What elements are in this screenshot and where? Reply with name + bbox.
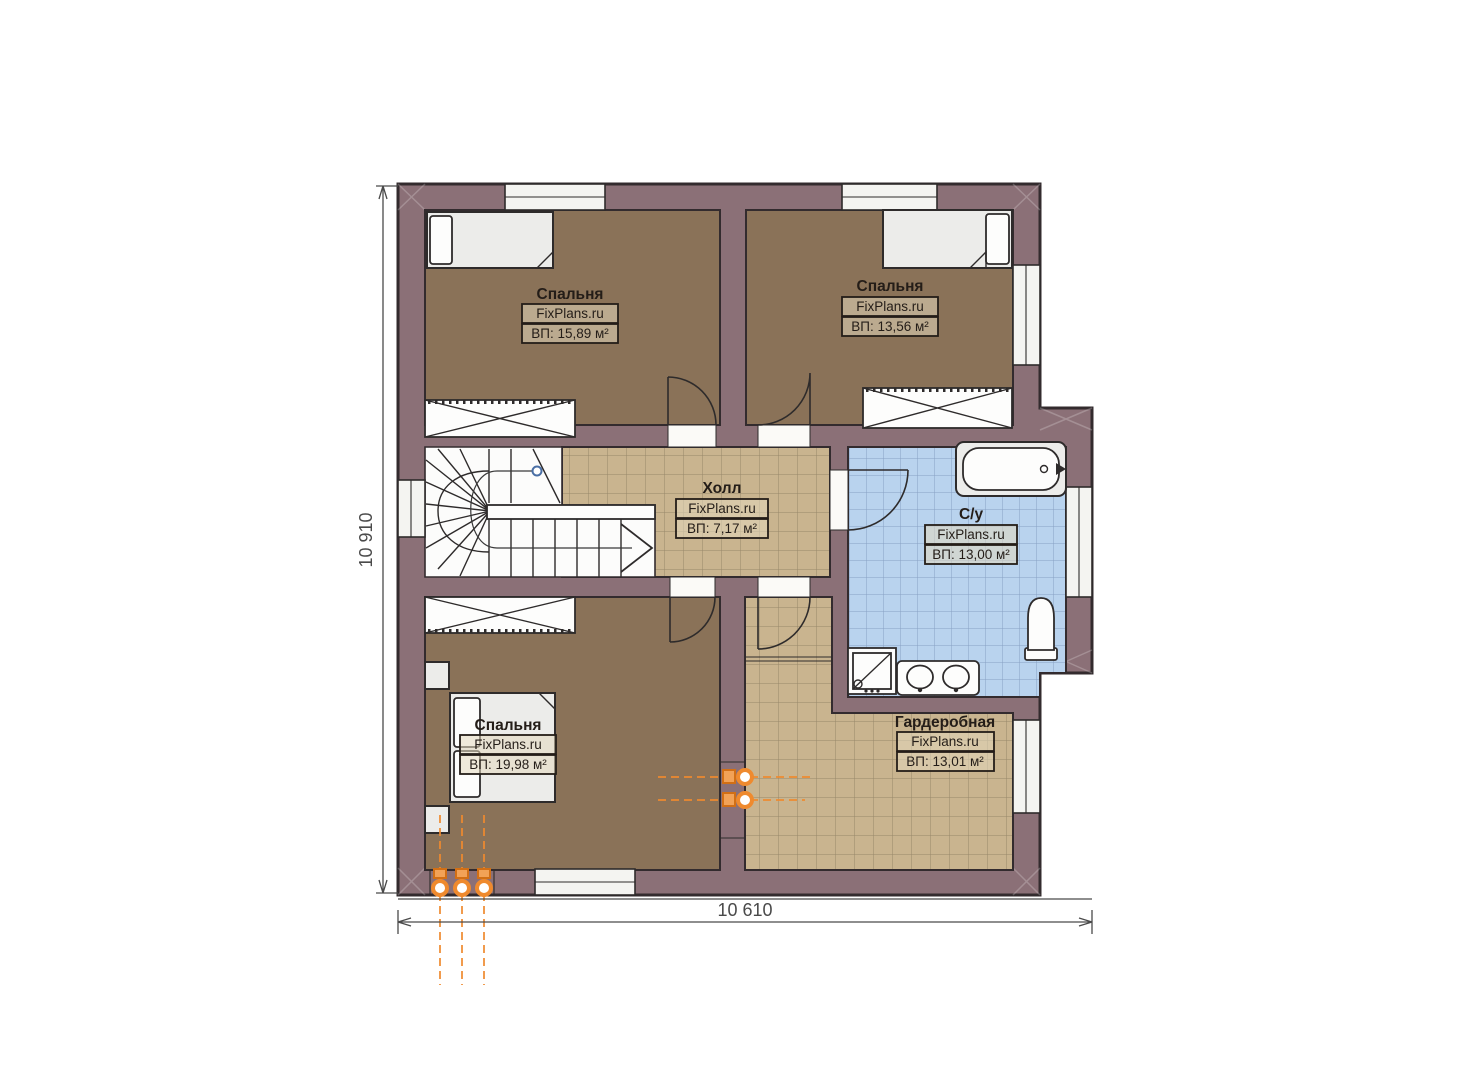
shower xyxy=(848,648,896,694)
watermark: FixPlans.ru xyxy=(688,501,756,516)
stair-walk-line-start xyxy=(533,467,542,476)
dimension-left: 10 910 xyxy=(356,186,398,893)
window-bedroom-2-top xyxy=(842,184,937,210)
pillow xyxy=(986,214,1009,264)
stair-handrail xyxy=(487,505,655,519)
riser-symbol xyxy=(478,869,490,878)
bathtub xyxy=(956,442,1066,496)
watermark: FixPlans.ru xyxy=(474,737,542,752)
window-bathroom-right xyxy=(1066,487,1092,597)
window-bedroom-1-top xyxy=(505,184,605,210)
riser-symbol xyxy=(723,770,735,783)
room-area: ВП: 13,00 м² xyxy=(932,547,1010,562)
room-name: Спальня xyxy=(475,717,542,734)
watermark: FixPlans.ru xyxy=(856,299,924,314)
room-name: Спальня xyxy=(857,278,924,295)
watermark: FixPlans.ru xyxy=(536,306,604,321)
building xyxy=(398,184,1092,985)
dimension-bottom: 10 610 xyxy=(398,899,1092,934)
room-area: ВП: 15,89 м² xyxy=(531,326,609,341)
room-area: ВП: 13,56 м² xyxy=(851,319,929,334)
room-name: Холл xyxy=(703,480,742,497)
room-name: С/у xyxy=(959,506,984,523)
riser-symbol xyxy=(738,770,752,784)
window-bedroom-3-bottom xyxy=(535,869,635,895)
room-name: Гардеробная xyxy=(895,714,995,731)
toilet xyxy=(1025,598,1057,660)
watermark: FixPlans.ru xyxy=(911,734,979,749)
riser-symbol xyxy=(434,869,446,878)
room-label-wardrobe: Гардеробная FixPlans.ru ВП: 13,01 м² xyxy=(895,714,995,771)
window-wardrobe-right xyxy=(1013,720,1040,813)
wardrobe-cabinet xyxy=(863,388,1012,428)
riser-symbol xyxy=(433,881,447,895)
dimension-width-value: 10 610 xyxy=(717,900,772,920)
riser-symbol xyxy=(738,793,752,807)
riser-symbol xyxy=(723,793,735,806)
watermark: FixPlans.ru xyxy=(937,527,1005,542)
riser-symbol xyxy=(477,881,491,895)
nightstand xyxy=(425,806,449,833)
double-sink xyxy=(897,661,979,695)
wardrobe-cabinet xyxy=(425,597,575,633)
window-stairs-left xyxy=(398,480,425,537)
riser-symbol xyxy=(455,881,469,895)
room-area: ВП: 19,98 м² xyxy=(469,757,547,772)
pillow xyxy=(430,216,452,264)
room-area: ВП: 7,17 м² xyxy=(687,521,758,536)
floor-plan-canvas: Спальня FixPlans.ru ВП: 15,89 м² Спальня… xyxy=(0,0,1473,1080)
nightstand xyxy=(425,662,449,689)
room-area: ВП: 13,01 м² xyxy=(906,754,984,769)
riser-symbol xyxy=(456,869,468,878)
window-bedroom-2-right xyxy=(1013,265,1040,365)
wardrobe-cabinet xyxy=(425,400,575,437)
dimension-height-value: 10 910 xyxy=(356,512,376,567)
room-name: Спальня xyxy=(537,286,604,303)
